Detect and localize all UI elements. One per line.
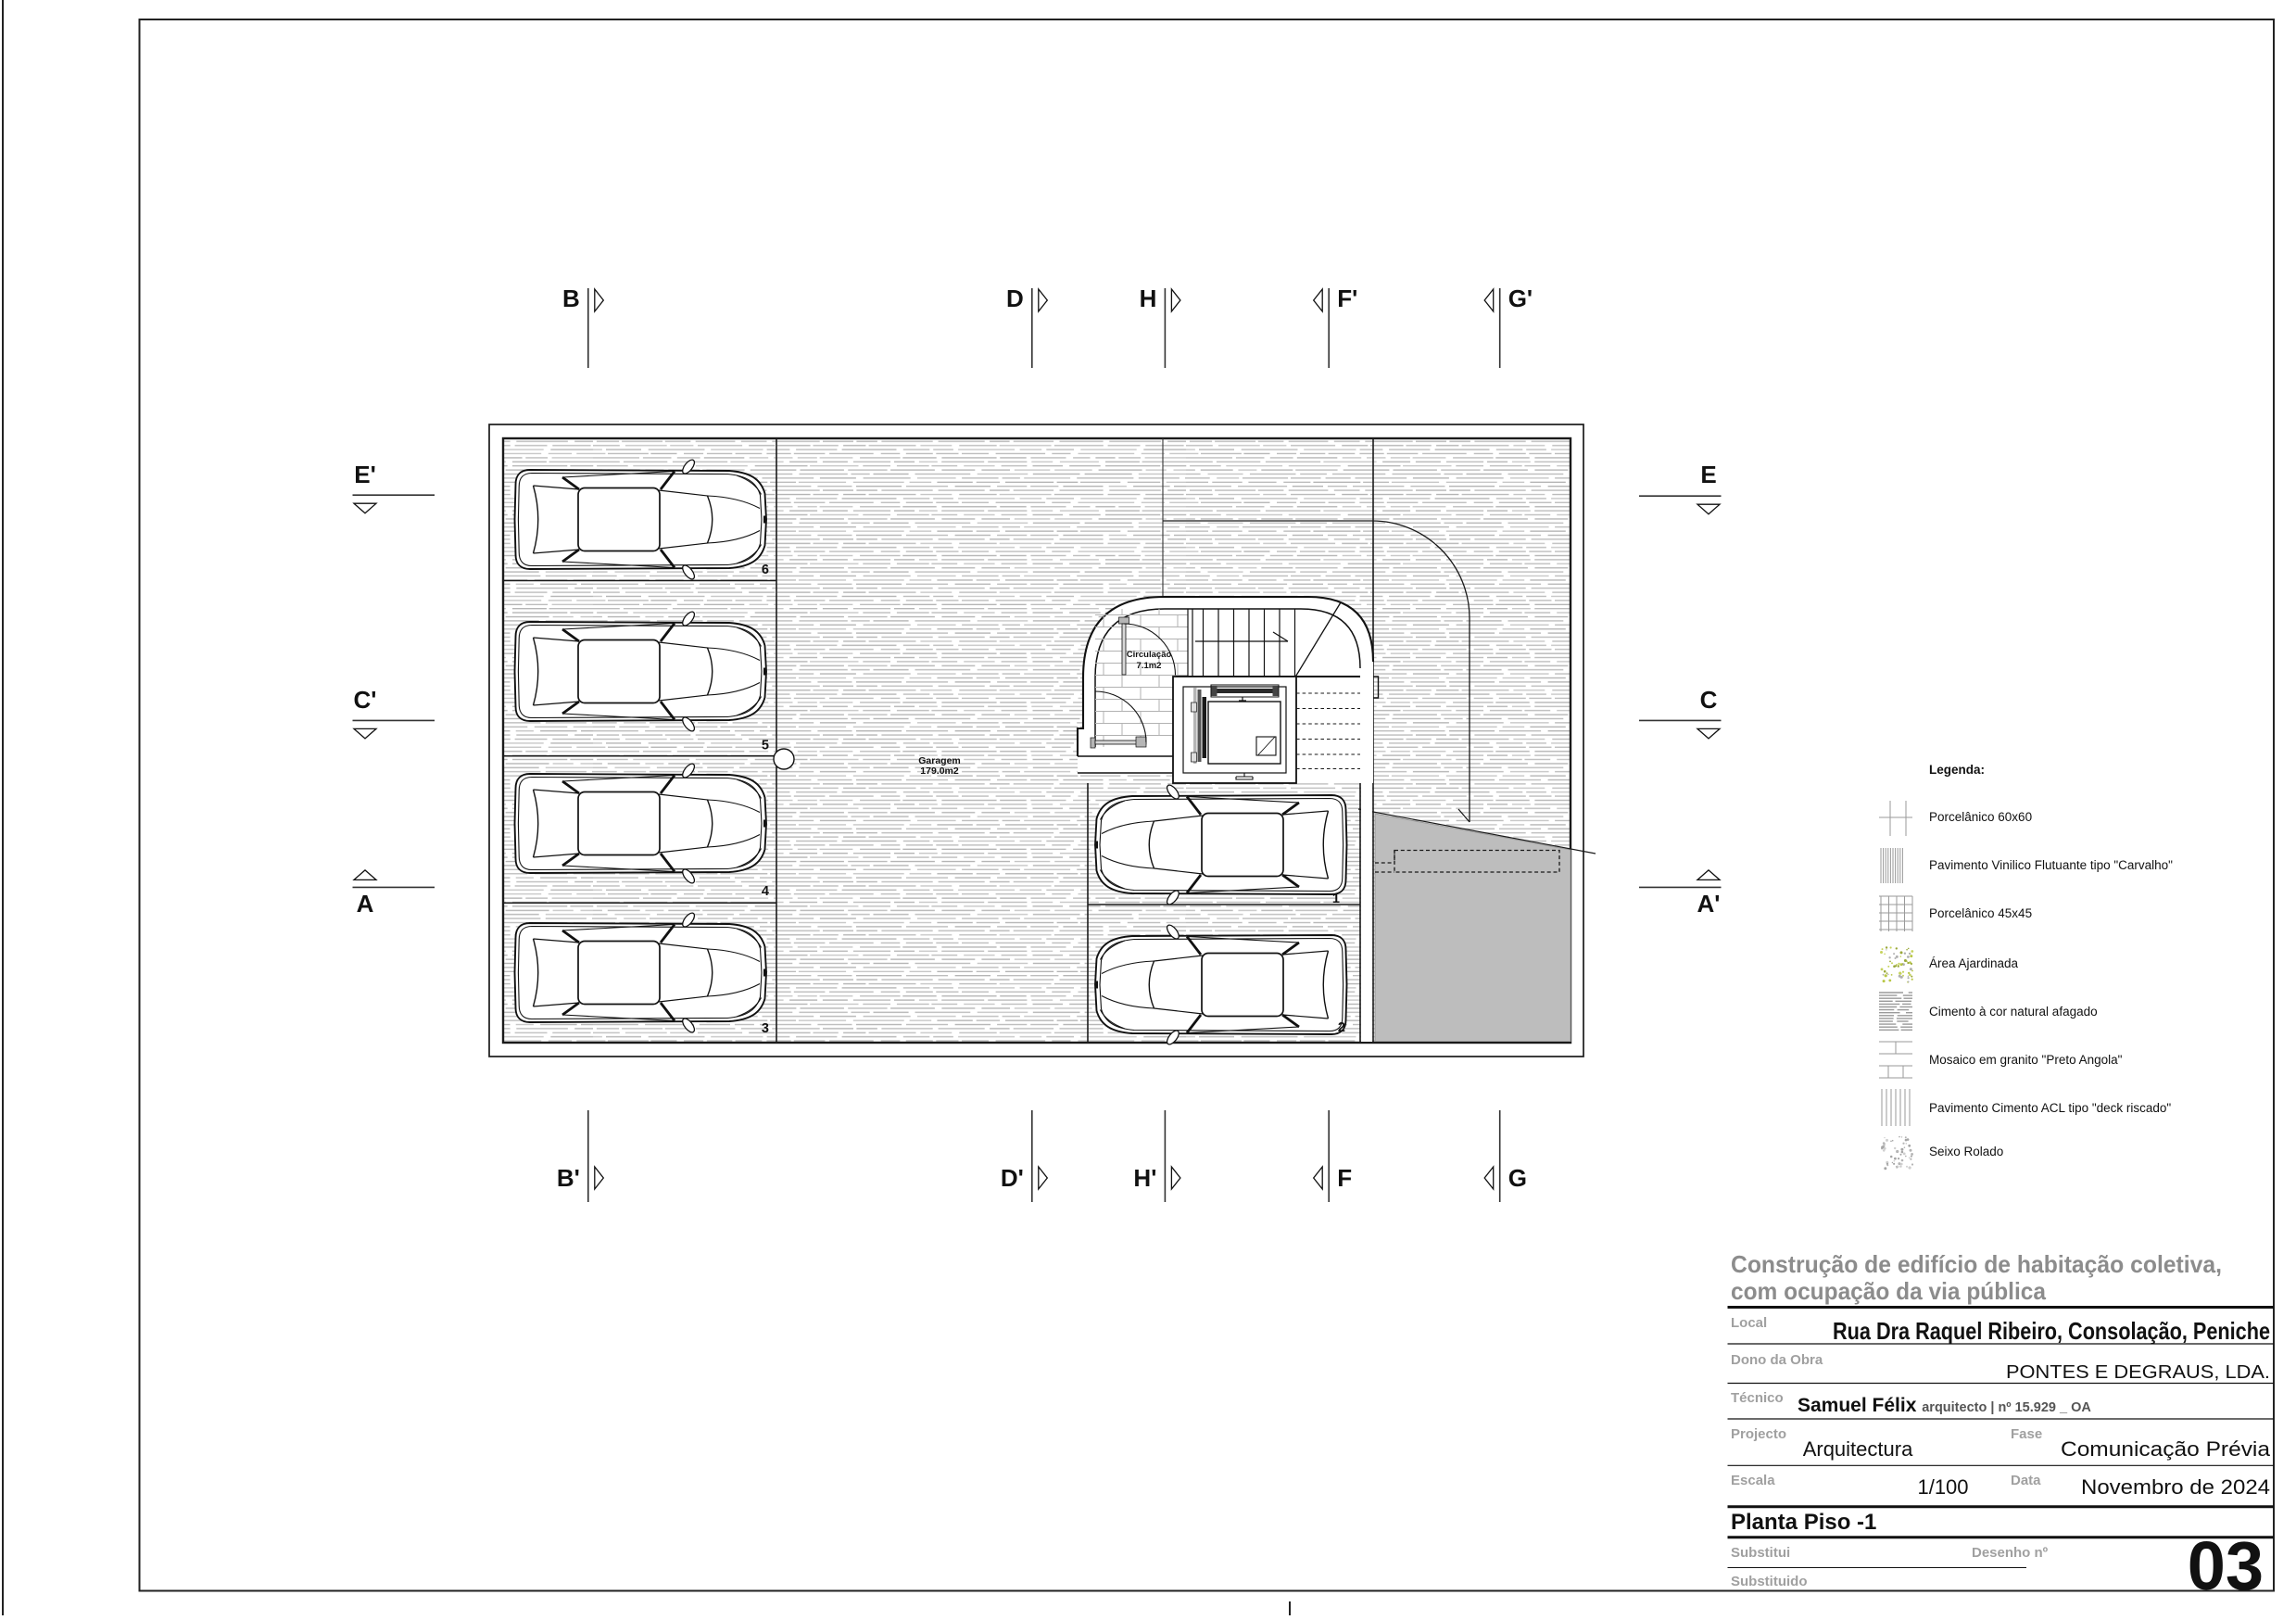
svg-text:Mosaico em granito "Preto Ango: Mosaico em granito "Preto Angola" [1929,1053,2123,1067]
svg-text:G': G' [1508,285,1533,312]
svg-text:1/100: 1/100 [1917,1475,1968,1499]
svg-text:B': B' [557,1164,580,1192]
svg-text:B: B [562,285,580,312]
svg-text:Legenda:: Legenda: [1929,763,1985,777]
svg-text:Seixo Rolado: Seixo Rolado [1929,1145,2003,1158]
svg-text:C': C' [354,686,377,714]
svg-text:03: 03 [2188,1527,2264,1604]
svg-text:Fase: Fase [2011,1426,2042,1442]
svg-text:H': H' [1133,1164,1156,1192]
svg-text:Substituido: Substituido [1731,1574,1808,1589]
svg-text:Pavimento Vinilico Flutuante t: Pavimento Vinilico Flutuante tipo "Carva… [1929,858,2173,872]
svg-text:A': A' [1697,890,1721,918]
svg-text:Circulação: Circulação [1127,650,1172,660]
svg-text:Cimento à cor natural afagado: Cimento à cor natural afagado [1929,1005,2098,1019]
svg-text:com ocupação da via pública: com ocupação da via pública [1731,1277,2046,1305]
svg-text:Técnico: Técnico [1731,1390,1784,1406]
svg-text:E: E [1700,461,1716,488]
svg-text:7.1m2: 7.1m2 [1137,661,1162,671]
svg-text:Dono da Obra: Dono da Obra [1731,1352,1823,1368]
svg-text:Novembro de 2024: Novembro de 2024 [2081,1475,2270,1499]
svg-text:Comunicação Prévia: Comunicação Prévia [2061,1437,2271,1461]
svg-text:Área Ajardinada: Área Ajardinada [1929,956,2019,970]
svg-text:G: G [1508,1164,1527,1192]
svg-text:PONTES E DEGRAUS, LDA.: PONTES E DEGRAUS, LDA. [2006,1361,2270,1383]
svg-text:Data: Data [2011,1473,2041,1488]
svg-text:3: 3 [762,1021,769,1036]
svg-text:D': D' [1001,1164,1024,1192]
svg-text:Rua Dra Raquel Ribeiro, Consol: Rua Dra Raquel Ribeiro, Consolação, Peni… [1833,1317,2270,1345]
svg-text:Porcelânico 60x60: Porcelânico 60x60 [1929,810,2032,824]
svg-text:Arquitectura: Arquitectura [1803,1437,1913,1461]
svg-text:Construção de edifício de habi: Construção de edifício de habitação cole… [1731,1250,2222,1278]
svg-text:E': E' [354,461,376,488]
svg-text:Desenho nº: Desenho nº [1972,1545,2049,1561]
svg-text:Pavimento Cimento ACL tipo "de: Pavimento Cimento ACL tipo "deck riscado… [1929,1101,2171,1115]
svg-text:6: 6 [762,563,769,577]
svg-text:2: 2 [1338,1020,1345,1035]
svg-text:Substitui: Substitui [1731,1545,1790,1561]
svg-text:5: 5 [762,739,769,753]
svg-text:C: C [1700,686,1718,714]
svg-text:H: H [1140,285,1157,312]
svg-text:Local: Local [1731,1315,1767,1331]
svg-text:1: 1 [1332,892,1340,906]
svg-text:F: F [1337,1164,1352,1192]
svg-text:Planta Piso -1: Planta Piso -1 [1731,1510,1876,1535]
svg-text:4: 4 [762,884,769,899]
svg-text:179.0m2: 179.0m2 [920,766,959,777]
svg-text:D: D [1006,285,1024,312]
svg-text:Projecto: Projecto [1731,1426,1786,1442]
svg-text:F': F' [1337,285,1357,312]
svg-text:Escala: Escala [1731,1473,1775,1488]
svg-text:A: A [357,890,374,918]
svg-text:Porcelânico 45x45: Porcelânico 45x45 [1929,906,2032,920]
